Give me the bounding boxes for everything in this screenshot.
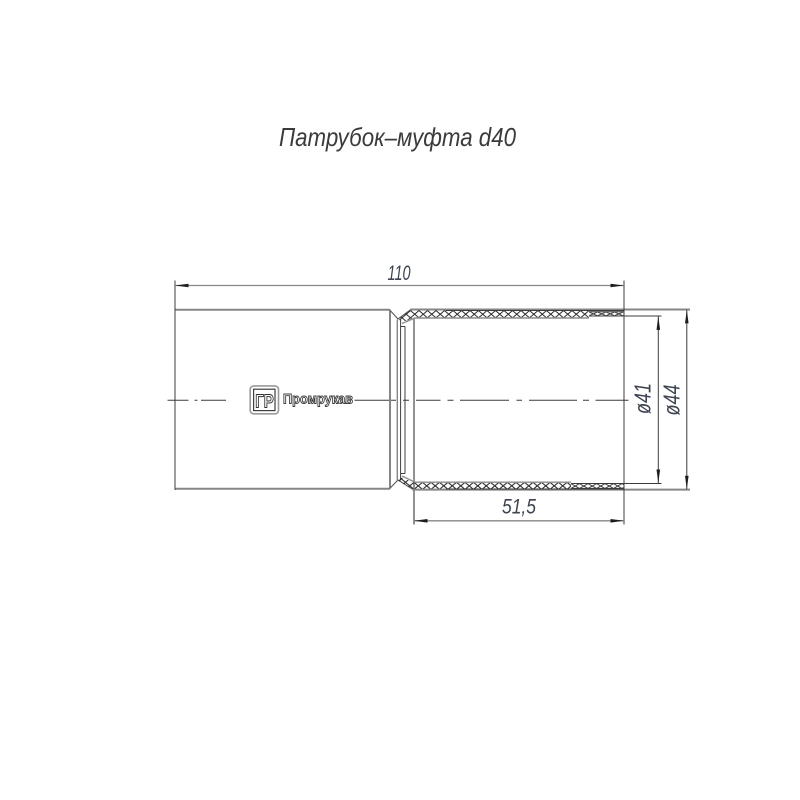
svg-text:110: 110 xyxy=(388,262,411,285)
svg-text:ø41: ø41 xyxy=(630,383,656,414)
svg-text:ø44: ø44 xyxy=(659,385,685,416)
svg-text:ГР: ГР xyxy=(255,392,274,412)
svg-text:Патрубок–муфта d40: Патрубок–муфта d40 xyxy=(279,122,516,152)
svg-text:51,5: 51,5 xyxy=(502,496,536,519)
svg-text:Промрукав: Промрукав xyxy=(283,391,353,407)
